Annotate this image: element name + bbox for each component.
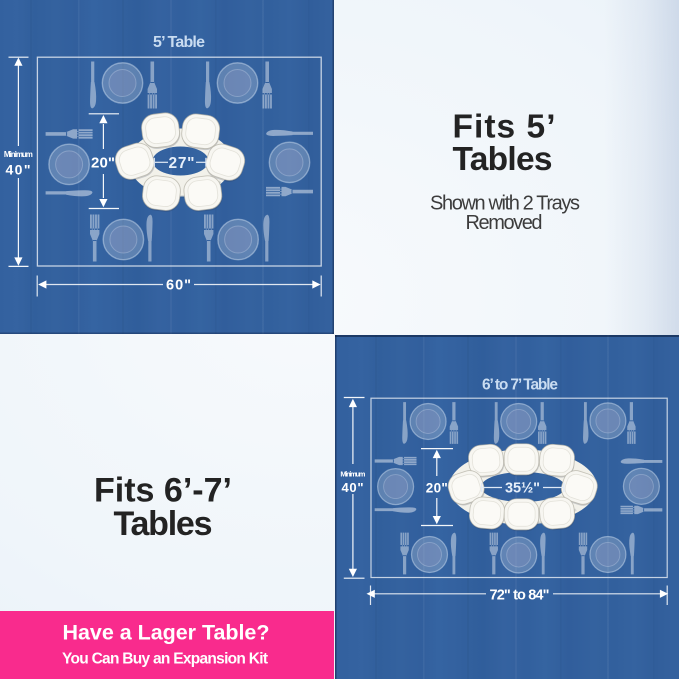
svg-text:Tables: Tables	[114, 505, 213, 543]
svg-text:6’ to 7’ Table: 6’ to 7’ Table	[482, 377, 558, 394]
svg-text:Minimum: Minimum	[340, 469, 365, 478]
svg-text:Have a Lager Table?: Have a Lager Table?	[63, 621, 270, 645]
svg-text:5’ Table: 5’ Table	[153, 34, 205, 51]
svg-text:72" to 84": 72" to 84"	[490, 587, 550, 603]
svg-text:Minimum: Minimum	[4, 150, 33, 159]
svg-text:40": 40"	[6, 162, 31, 178]
svg-text:You Can Buy an Expansion Kit: You Can Buy an Expansion Kit	[62, 651, 268, 668]
svg-text:35½": 35½"	[505, 481, 540, 497]
svg-text:20": 20"	[91, 155, 115, 172]
svg-text:60": 60"	[166, 277, 191, 293]
svg-text:Tables: Tables	[453, 141, 553, 178]
svg-text:Removed: Removed	[466, 212, 543, 234]
svg-text:40": 40"	[342, 480, 364, 495]
svg-text:27": 27"	[169, 155, 195, 172]
svg-text:20": 20"	[426, 480, 448, 495]
svg-text:Fits 6’-7’: Fits 6’-7’	[94, 472, 232, 510]
